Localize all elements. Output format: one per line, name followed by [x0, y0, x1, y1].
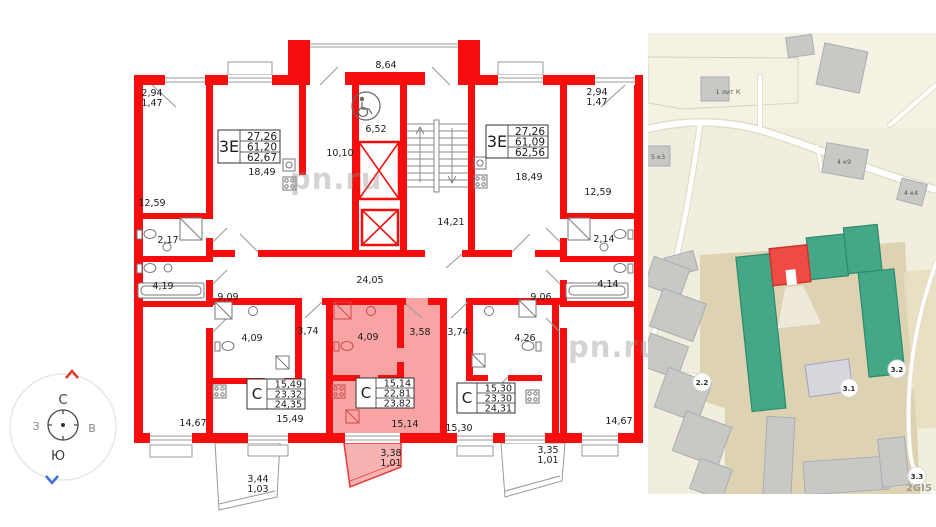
apartment-area-3: 62,67	[247, 152, 277, 164]
label-bedroom-left: 12,59	[138, 198, 165, 209]
label-balcony-tl-2: 1,47	[141, 98, 162, 109]
apartment-area-3: 24,35	[275, 400, 302, 411]
badge-2-2: 2.2	[696, 379, 709, 387]
map-label-5k3: 5 к3	[651, 153, 665, 161]
label-wc-left: 2,17	[157, 235, 178, 246]
label-studio-left-room: 15,49	[276, 414, 303, 425]
label-room-bl: 14,67	[179, 418, 206, 429]
label-studio-right-hall: 3,74	[447, 327, 468, 338]
apartment-info-center-studio: С 15,14 22,81 23,82	[356, 378, 414, 410]
apartment-area-3: 23,82	[384, 399, 411, 410]
label-studio-right-bath: 4,26	[514, 333, 535, 344]
badge-3-3: 3.3	[911, 473, 924, 481]
compass-south-label: Ю	[51, 449, 65, 464]
apartment-type: С	[252, 385, 262, 403]
label-corridor-main: 24,05	[356, 275, 383, 286]
label-balcony-bl-2: 1,03	[247, 484, 268, 495]
badge-3-1: 3.1	[843, 385, 856, 393]
badge-3-2: 3.2	[891, 366, 904, 374]
label-room-br: 14,67	[605, 416, 632, 427]
label-bath-right: 4,14	[597, 279, 618, 290]
apartment-info-left-3e: 3Е 27,26 61,20 62,67	[218, 130, 280, 164]
floor-plan[interactable]: 3Е 27,26 61,20 62,67 3Е 27,26 61,09 62,5…	[134, 40, 660, 510]
apartment-info-right-studio: С 15,30 23,30 24,31	[457, 383, 515, 415]
label-studio-right-room: 15,30	[445, 423, 472, 434]
label-kitchen-left: 10,10	[326, 148, 353, 159]
label-living-right: 18,49	[515, 172, 542, 183]
label-corridor-top: 8,64	[375, 60, 396, 71]
label-living-left: 18,49	[248, 167, 275, 178]
label-studio-center-room: 15,14	[391, 419, 418, 430]
scene: 3Е 27,26 61,20 62,67 3Е 27,26 61,09 62,5…	[0, 0, 936, 527]
map-label-4k9: 4 к9	[837, 158, 851, 166]
watermark-map: pn.ru	[568, 330, 660, 364]
label-balcony-bc-2: 1,01	[380, 458, 401, 469]
label-bedroom-right: 12,59	[584, 187, 611, 198]
label-bath-left: 4,19	[152, 281, 173, 292]
label-wc-right: 2,14	[593, 234, 614, 245]
label-lobby: 6,52	[365, 124, 386, 135]
compass-east-label: В	[88, 422, 96, 435]
map-provider-logo: 2GIS	[906, 483, 932, 494]
label-balcony-tr-2: 1,47	[586, 97, 607, 108]
apartment-area-3: 62,56	[515, 147, 545, 159]
floorplan-viewer: 3Е 27,26 61,20 62,67 3Е 27,26 61,09 62,5…	[0, 0, 936, 527]
label-balcony-br-2: 1,01	[537, 455, 558, 466]
stairs-icon	[407, 120, 468, 192]
label-stairs: 14,21	[437, 217, 464, 228]
apartment-area-3: 24,31	[485, 404, 512, 415]
location-map[interactable]: 2.2 3.1 3.2 3.3 1 лит К 5 к3 4 к9 4 к4 2…	[639, 33, 936, 500]
compass: С Ю З В	[10, 371, 116, 483]
apartment-type: С	[361, 384, 371, 402]
label-studio-left-bath: 4,09	[241, 333, 262, 344]
apartment-type: С	[462, 389, 472, 407]
compass-north-label: С	[58, 393, 67, 408]
label-hall-left: 9,09	[217, 292, 238, 303]
compass-west-label: З	[32, 420, 39, 433]
label-studio-left-hall: 3,74	[297, 326, 318, 337]
label-hall-right: 9,06	[530, 292, 551, 303]
label-studio-center-bath: 4,09	[357, 332, 378, 343]
apartment-type: 3Е	[487, 132, 507, 151]
map-label-4k4: 4 к4	[904, 189, 918, 197]
map-label-lit-k: 1 лит К	[715, 88, 740, 96]
map-selected-entrance	[785, 269, 797, 285]
label-studio-center-hall: 3,58	[409, 327, 430, 338]
apartment-info-left-studio: С 15,49 23,32 24,35	[247, 379, 305, 411]
apartment-type: 3Е	[219, 137, 239, 156]
watermark-plan: pn.ru	[290, 162, 382, 196]
apartment-info-right-3e: 3Е 27,26 61,09 62,56	[486, 125, 548, 159]
